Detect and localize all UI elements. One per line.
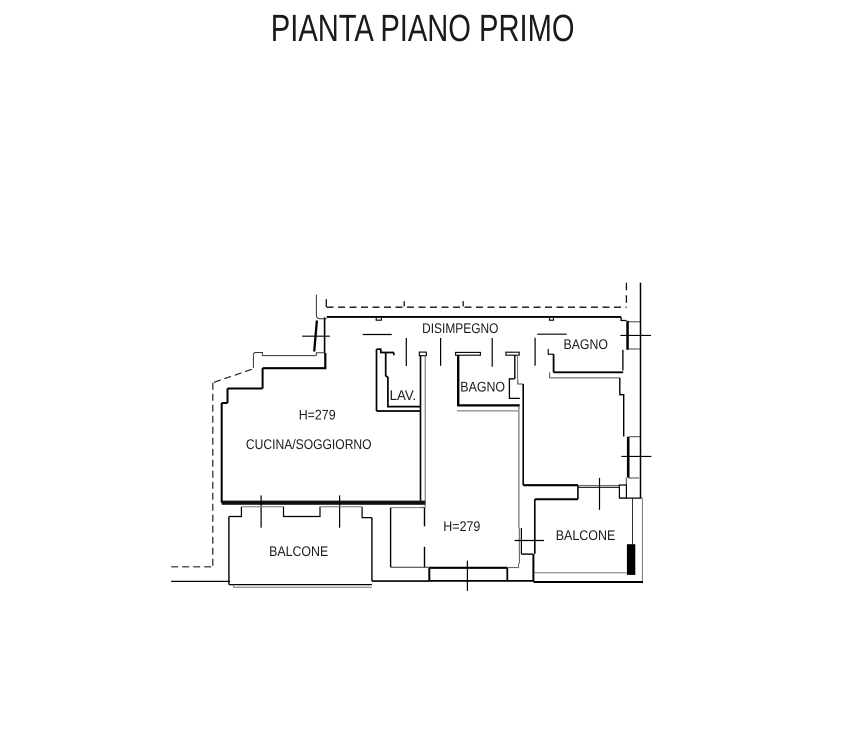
svg-text:PIANTA PIANO PRIMO: PIANTA PIANO PRIMO	[271, 8, 575, 50]
svg-text:LAV.: LAV.	[390, 387, 417, 403]
svg-text:CUCINA/SOGGIORNO: CUCINA/SOGGIORNO	[246, 436, 372, 452]
svg-text:BALCONE: BALCONE	[269, 543, 328, 559]
svg-text:H=279: H=279	[299, 407, 336, 423]
svg-text:BAGNO: BAGNO	[564, 336, 609, 352]
svg-text:H=279: H=279	[443, 518, 480, 534]
svg-text:DISIMPEGNO: DISIMPEGNO	[422, 320, 498, 336]
svg-text:BAGNO: BAGNO	[460, 379, 505, 395]
svg-text:BALCONE: BALCONE	[556, 527, 616, 543]
